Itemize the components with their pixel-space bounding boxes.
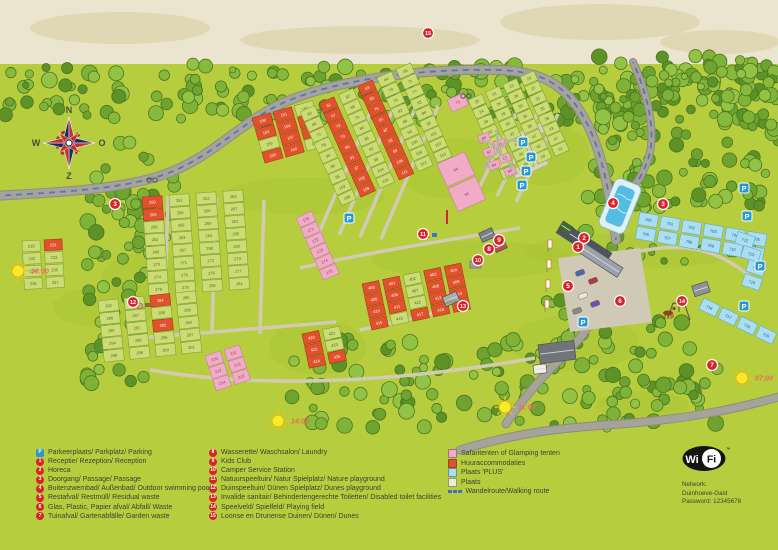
- plus-swatch: [448, 468, 457, 477]
- svg-text:274: 274: [154, 274, 162, 280]
- safari-swatch: [448, 449, 457, 458]
- legend-item-route: Wandelroute/Walking route: [448, 488, 560, 495]
- svg-text:276: 276: [208, 270, 216, 276]
- marker-2-icon: 2: [36, 467, 44, 475]
- huur-swatch: [448, 459, 457, 468]
- legend-column-facilities-2: 8Wasserette/ Waschsalon/ Laundry9Kids Cl…: [209, 449, 441, 520]
- svg-text:260: 260: [204, 220, 212, 226]
- svg-text:12: 12: [130, 300, 136, 306]
- map-marker-9-kids-club: 9: [494, 235, 505, 246]
- map-marker-14-playing-field: 14: [677, 296, 688, 307]
- map-marker-5-residual-waste: 5: [563, 281, 574, 292]
- legend-item-huur: Huuraccommodaties: [448, 460, 560, 467]
- map-marker-12-dunes-playground: 12: [128, 297, 139, 308]
- svg-text:N: N: [66, 105, 73, 115]
- svg-text:3: 3: [661, 201, 665, 208]
- svg-text:273: 273: [234, 256, 242, 262]
- legend-item-12: 12Duinspeeltuin/ Dünen Spielplatz/ Dunes…: [209, 485, 441, 492]
- svg-text:2: 2: [582, 235, 586, 242]
- marker-11-icon: 11: [209, 476, 217, 484]
- legend-label: Safaritenten of Glamping tenten: [461, 450, 560, 457]
- svg-text:3: 3: [113, 201, 117, 208]
- svg-text:253: 253: [230, 194, 238, 200]
- svg-text:252: 252: [203, 195, 211, 201]
- map-marker-3-passage-west: 3: [110, 199, 121, 210]
- svg-text:267: 267: [179, 247, 187, 253]
- wifi-network-name: Duinhoeve-Gast: [682, 490, 774, 499]
- svg-text:07:00: 07:00: [755, 376, 773, 383]
- svg-text:266: 266: [152, 249, 160, 255]
- legend-item-14: 14Speelveld/ Spielfeld/ Playing field: [209, 504, 441, 511]
- legend-label: Buitenzwembad/ Außenbad/ Outdoor swimmin…: [48, 485, 211, 492]
- marker-13-icon: 13: [209, 494, 217, 502]
- svg-text:264: 264: [205, 233, 213, 239]
- marker-10-icon: 10: [209, 467, 217, 475]
- legend-item-P: PParkeerplaats/ Parkplatz/ Parking: [36, 449, 211, 456]
- svg-text:4: 4: [611, 200, 615, 207]
- svg-text:14: 14: [679, 299, 686, 305]
- legend-item-1: 1Receptie/ Rezeption/ Reception: [36, 458, 211, 465]
- legend-column-facilities-1: PParkeerplaats/ Parkplatz/ Parking1Recep…: [36, 449, 211, 520]
- svg-text:281: 281: [236, 281, 244, 287]
- marker-3-icon: 3: [36, 476, 44, 484]
- legend-item-13: 13Invalide sanitair/ Behindertengerechte…: [209, 494, 441, 501]
- legend-label: Wandelroute/Walking route: [466, 488, 550, 495]
- legend-item-11: 11Natuurspeeltuin/ Natur Spielplatz/ Nat…: [209, 476, 441, 483]
- legend-label: Plaats 'PLUS': [461, 469, 503, 476]
- legend-label: Kids Club: [221, 458, 251, 465]
- map-marker-7-garden-waste: 7: [707, 360, 718, 371]
- svg-text:233: 233: [50, 255, 58, 260]
- svg-text:235: 235: [51, 267, 59, 272]
- parking-icon-7: P: [742, 211, 752, 221]
- legend-item-6: 6Glas, Plastic, Papier afval/ Abfall/ Wa…: [36, 504, 211, 511]
- legend-item-10: 10Camper Service Station: [209, 467, 441, 474]
- legend-label: Glas, Plastic, Papier afval/ Abfall/ Was…: [48, 504, 172, 511]
- svg-text:268: 268: [206, 245, 214, 251]
- marker-6-icon: 6: [36, 503, 44, 511]
- marker-12-icon: 12: [209, 485, 217, 493]
- svg-text:263: 263: [178, 235, 186, 241]
- svg-text:Wi: Wi: [685, 454, 698, 466]
- svg-text:258: 258: [151, 224, 159, 230]
- svg-text:P: P: [520, 138, 525, 147]
- svg-text:P: P: [519, 181, 524, 190]
- svg-text:259: 259: [178, 222, 186, 228]
- marker-5-icon: 5: [36, 494, 44, 502]
- svg-text:237: 237: [52, 280, 60, 285]
- svg-text:277: 277: [235, 268, 243, 274]
- map-marker-1-reception: 1: [573, 242, 584, 253]
- legend-item-5: 5Restafval/ Restmüll/ Residual waste: [36, 494, 211, 501]
- legend-item-9: 9Kids Club: [209, 458, 441, 465]
- parking-icon-0: P: [518, 137, 528, 147]
- legend-label: Receptie/ Rezeption/ Reception: [48, 458, 146, 465]
- legend-label: Tuinafval/ Gartenabfälle/ Garden waste: [48, 513, 170, 520]
- legend-label: Doorgang/ Passage/ Passage: [48, 476, 141, 483]
- map-marker-13-disabled-toilet: 13: [458, 301, 469, 312]
- marker-8-icon: 8: [209, 449, 217, 457]
- map-marker-15-dunes: 15: [423, 28, 434, 39]
- marker-9-icon: 9: [209, 458, 217, 466]
- parking-icon-4: P: [344, 213, 354, 223]
- svg-text:236: 236: [30, 281, 38, 286]
- svg-text:15: 15: [425, 31, 431, 37]
- legend-label: Plaats: [461, 479, 480, 486]
- svg-text:8: 8: [487, 246, 491, 253]
- svg-text:255: 255: [177, 210, 185, 216]
- campground-map-page: { "legend": { "col1": [ {"icon":"P","lab…: [0, 0, 778, 550]
- parking-icon-1: P: [526, 152, 536, 162]
- wifi-network-label: Network:: [682, 481, 774, 490]
- plaats-swatch: [448, 478, 457, 487]
- svg-text:1: 1: [576, 244, 580, 251]
- svg-text:P: P: [757, 262, 762, 271]
- svg-text:™: ™: [726, 447, 730, 453]
- legend-item-8: 8Wasserette/ Waschsalon/ Laundry: [209, 449, 441, 456]
- legend-item-7: 7Tuinafval/ Gartenabfälle/ Garden waste: [36, 513, 211, 520]
- svg-text:13: 13: [460, 304, 466, 310]
- legend-label: Horeca: [48, 467, 71, 474]
- map-marker-3-passage-east: 3: [658, 199, 669, 210]
- marker-7-icon: 7: [36, 512, 44, 520]
- svg-text:271: 271: [180, 260, 188, 266]
- svg-text:262: 262: [151, 237, 159, 243]
- legend-label: Invalide sanitair/ Behindertengerechte T…: [221, 494, 441, 501]
- parking-icon-3: P: [517, 180, 527, 190]
- svg-text:251: 251: [176, 197, 184, 203]
- legend-label: Wasserette/ Waschsalon/ Laundry: [221, 449, 327, 456]
- legend-item-4: 4Buitenzwembad/ Außenbad/ Outdoor swimmi…: [36, 485, 211, 492]
- legend-label: Speelveld/ Spielfeld/ Playing field: [221, 504, 324, 511]
- marker-15-icon: 15: [209, 512, 217, 520]
- svg-text:P: P: [528, 153, 533, 162]
- wifi-info: Wi Fi ™ Network: Duinhoeve-Gast Password…: [682, 445, 774, 507]
- svg-text:14:00: 14:00: [291, 419, 309, 426]
- svg-text:272: 272: [207, 258, 215, 264]
- svg-text:11:00: 11:00: [518, 405, 535, 412]
- legend-item-15: 15Loonse en Drunense Duinen/ Dünen/ Dune…: [209, 513, 441, 520]
- marker-14-icon: 14: [209, 503, 217, 511]
- wifi-password: Password: 12345678: [682, 498, 774, 507]
- legend-item-3: 3Doorgang/ Passage/ Passage: [36, 476, 211, 483]
- svg-text:275: 275: [181, 272, 189, 278]
- svg-text:231: 231: [50, 242, 58, 247]
- svg-text:261: 261: [231, 219, 239, 225]
- parking-icon-5: P: [578, 317, 588, 327]
- marker-1-icon: 1: [36, 458, 44, 466]
- svg-text:6: 6: [618, 298, 622, 305]
- legend-label: Parkeerplaats/ Parkplatz/ Parking: [48, 449, 152, 456]
- walking-route-icon: [448, 490, 462, 493]
- legend-label: Duinspeeltuin/ Dünen Spielplatz/ Dunes p…: [221, 485, 381, 492]
- svg-text:230: 230: [28, 243, 36, 248]
- svg-text:257: 257: [231, 206, 239, 212]
- svg-text:10: 10: [475, 258, 481, 264]
- svg-text:O: O: [98, 138, 105, 148]
- marker-4-icon: 4: [36, 485, 44, 493]
- svg-text:P: P: [741, 302, 746, 311]
- wifi-logo: Wi Fi ™: [682, 445, 730, 472]
- parking-icon-6: P: [739, 183, 749, 193]
- map-marker-8-laundry: 8: [484, 244, 495, 255]
- parking-icon: P: [36, 449, 44, 457]
- svg-text:270: 270: [153, 262, 161, 268]
- svg-text:280: 280: [209, 283, 217, 289]
- svg-text:9: 9: [497, 237, 501, 244]
- svg-text:254: 254: [150, 212, 158, 218]
- legend-label: Camper Service Station: [221, 467, 295, 474]
- legend-label: Natuurspeeltuin/ Natur Spielplatz/ Natur…: [221, 476, 385, 483]
- map-marker-11-nature-playground: 11: [418, 229, 429, 240]
- legend-item-plus: Plaats 'PLUS': [448, 469, 560, 476]
- svg-text:18:00: 18:00: [31, 269, 49, 276]
- map-marker-10-camper-service-station: 10: [473, 255, 484, 266]
- legend-label: Restafval/ Restmüll/ Residual waste: [48, 494, 160, 501]
- map-marker-6-glass-plastic-paper-waste: 6: [615, 296, 626, 307]
- svg-text:7: 7: [710, 362, 714, 369]
- svg-text:11: 11: [420, 232, 426, 238]
- svg-text:250: 250: [149, 199, 157, 205]
- svg-text:278: 278: [155, 287, 163, 293]
- legend-column-pitch-types: Safaritenten of Glamping tentenHuuraccom…: [448, 450, 560, 495]
- legend-item-plaats: Plaats: [448, 479, 560, 486]
- svg-text:P: P: [744, 212, 749, 221]
- svg-text:P: P: [741, 184, 746, 193]
- legend-label: Huuraccommodaties: [461, 460, 525, 467]
- svg-text:Fi: Fi: [707, 454, 716, 466]
- svg-text:Z: Z: [66, 171, 72, 181]
- svg-text:269: 269: [233, 243, 241, 249]
- svg-text:P: P: [523, 167, 528, 176]
- parking-icon-2: P: [521, 166, 531, 176]
- svg-text:265: 265: [232, 231, 240, 237]
- legend-item-2: 2Horeca: [36, 467, 211, 474]
- svg-text:5: 5: [566, 283, 570, 290]
- legend-label: Loonse en Drunense Duinen/ Dünen/ Dunes: [221, 513, 359, 520]
- legend-item-safari: Safaritenten of Glamping tenten: [448, 450, 560, 457]
- parking-icon-9: P: [739, 301, 749, 311]
- svg-text:256: 256: [204, 208, 212, 214]
- svg-text:279: 279: [182, 285, 190, 291]
- map-marker-4-outdoor-pool: 4: [608, 198, 619, 209]
- svg-text:232: 232: [28, 256, 36, 261]
- svg-text:W: W: [32, 138, 41, 148]
- svg-text:P: P: [580, 318, 585, 327]
- parking-icon-8: P: [755, 261, 765, 271]
- svg-text:P: P: [346, 214, 351, 223]
